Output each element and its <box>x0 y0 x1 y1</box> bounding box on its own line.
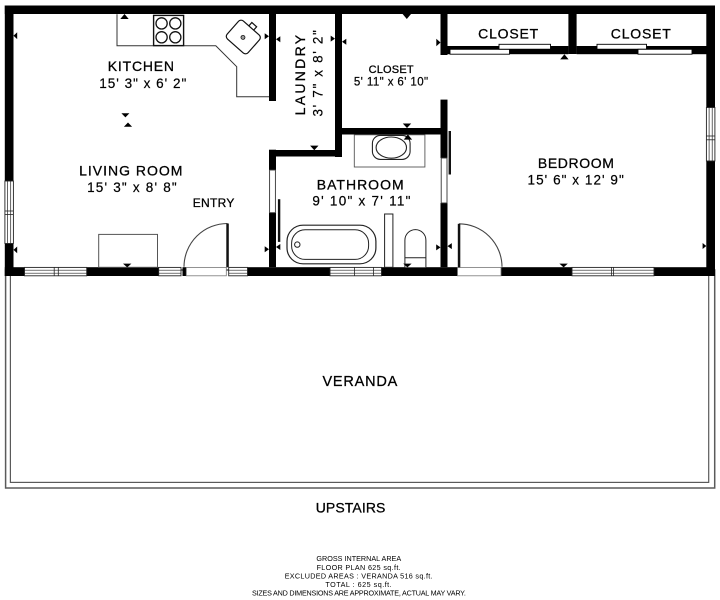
svg-text:15' 6" x 12' 9": 15' 6" x 12' 9" <box>528 173 625 188</box>
svg-text:ENTRY: ENTRY <box>193 196 235 210</box>
svg-text:3' 7" x 8' 2": 3' 7" x 8' 2" <box>311 29 326 117</box>
svg-text:LIVING ROOM: LIVING ROOM <box>79 163 183 179</box>
svg-text:GROSS INTERNAL AREA: GROSS INTERNAL AREA <box>316 554 401 563</box>
svg-text:BEDROOM: BEDROOM <box>538 155 615 171</box>
svg-text:UPSTAIRS: UPSTAIRS <box>316 500 386 516</box>
svg-text:15' 3" x 6' 2": 15' 3" x 6' 2" <box>99 76 187 91</box>
svg-text:LAUNDRY: LAUNDRY <box>292 33 308 116</box>
svg-text:CLOSET: CLOSET <box>369 64 414 76</box>
svg-text:CLOSET: CLOSET <box>611 26 672 42</box>
svg-text:BATHROOM: BATHROOM <box>317 177 405 193</box>
svg-text:SIZES AND DIMENSIONS ARE APPRO: SIZES AND DIMENSIONS ARE APPROXIMATE, AC… <box>252 588 466 597</box>
svg-text:CLOSET: CLOSET <box>478 26 539 42</box>
svg-text:15' 3" x 8' 8": 15' 3" x 8' 8" <box>87 180 178 195</box>
svg-text:9' 10" x 7' 11": 9' 10" x 7' 11" <box>312 194 411 209</box>
svg-text:VERANDA: VERANDA <box>322 374 398 390</box>
svg-text:5' 11" x 6' 10": 5' 11" x 6' 10" <box>354 77 429 89</box>
svg-text:KITCHEN: KITCHEN <box>108 58 175 74</box>
